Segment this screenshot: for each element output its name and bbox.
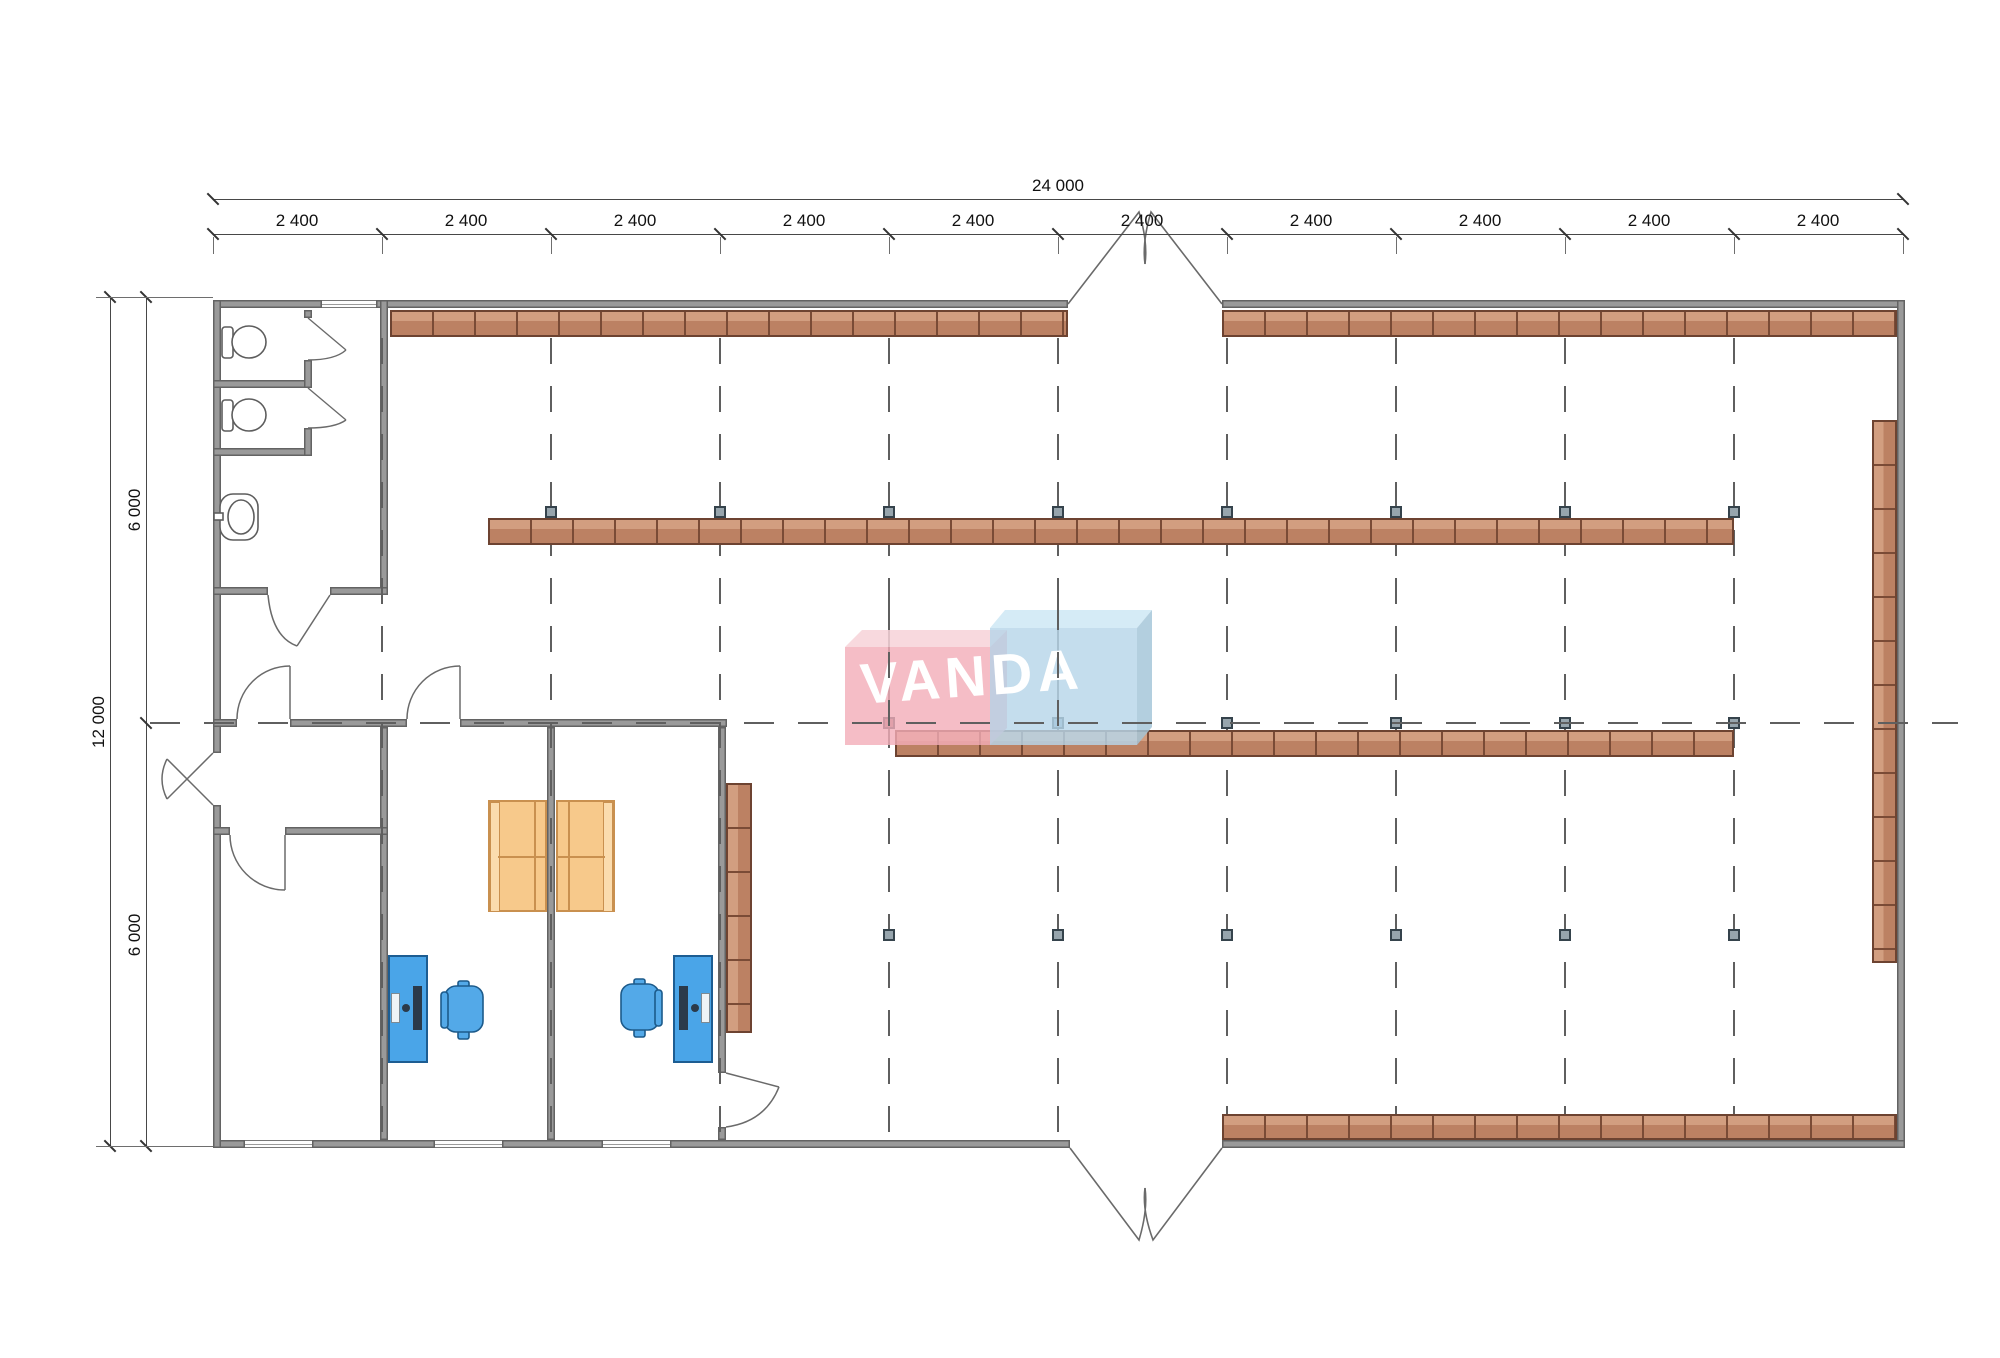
column-marker xyxy=(1052,929,1064,941)
wall-left xyxy=(213,300,221,753)
wall-top xyxy=(376,300,1068,308)
wall-bottom xyxy=(670,1140,1070,1148)
wall-bottom xyxy=(502,1140,603,1148)
office-chair xyxy=(621,979,662,1037)
dim-label-segment: 2 400 xyxy=(1797,211,1840,231)
witness-line xyxy=(1058,237,1059,254)
sofa-cushion-line xyxy=(568,802,570,910)
monitor-stand xyxy=(691,1004,699,1012)
grid-line-vertical xyxy=(381,338,383,1140)
wall-wc-stall-divider xyxy=(213,380,308,388)
dim-label-total-height: 12 000 xyxy=(89,696,109,748)
wall-wc-bottom xyxy=(213,587,268,595)
grid-line-horizontal-center xyxy=(150,722,1958,724)
entrance-door-bottom xyxy=(1070,1148,1222,1240)
wc-stall-door xyxy=(308,318,346,428)
grid-line-vertical xyxy=(719,338,721,1140)
witness-line xyxy=(213,237,214,254)
column-marker xyxy=(1728,929,1740,941)
toilet-icon xyxy=(222,326,266,358)
dimension-line-total-width xyxy=(213,199,1903,200)
grid-line-vertical-overlay xyxy=(1057,604,1059,729)
wall-wc-stall-divider xyxy=(213,448,308,456)
window-bottom xyxy=(603,1140,670,1148)
wall-wc-bottom xyxy=(330,587,388,595)
wall-right xyxy=(1897,300,1905,1148)
column-marker xyxy=(1559,506,1571,518)
dim-label-segment: 2 400 xyxy=(1121,211,1164,231)
shelf-office-back xyxy=(726,783,752,1033)
hallway-lower-door xyxy=(230,835,285,890)
witness-line xyxy=(551,237,552,254)
column-marker xyxy=(1728,506,1740,518)
keyboard xyxy=(391,993,400,1023)
column-marker xyxy=(883,929,895,941)
shelf-row-top-left xyxy=(390,310,1068,337)
office-center-doors xyxy=(237,666,460,719)
witness-line xyxy=(889,237,890,254)
witness-line xyxy=(1734,237,1735,254)
witness-line xyxy=(96,1146,213,1147)
shelf-row-top-right xyxy=(1222,310,1897,337)
window-top-wc xyxy=(322,300,376,308)
witness-line xyxy=(1903,237,1904,254)
wall-top xyxy=(213,300,322,308)
dimension-line-total-height xyxy=(110,297,111,1146)
witness-line xyxy=(96,297,213,298)
dim-label-segment: 2 400 xyxy=(1628,211,1671,231)
wall-hallway-lower xyxy=(285,827,388,835)
shelf-right-wall xyxy=(1872,420,1897,963)
wall-hallway-lower xyxy=(213,827,230,835)
wall-bottom xyxy=(1222,1140,1905,1148)
dim-label-segment: 2 400 xyxy=(1290,211,1333,231)
wall-bottom xyxy=(312,1140,435,1148)
column-marker xyxy=(545,506,557,518)
monitor xyxy=(413,986,422,1030)
shelf-row-middle-upper xyxy=(488,518,1734,545)
wall-wc-stall-front xyxy=(304,360,312,388)
witness-line xyxy=(1396,237,1397,254)
window-bottom xyxy=(435,1140,502,1148)
wall-left xyxy=(213,805,221,1148)
floor-plan-canvas: 24 000 2 400 2 400 2 400 2 400 2 400 2 4… xyxy=(0,0,2000,1358)
dim-label-height-upper: 6 000 xyxy=(125,489,145,532)
witness-line xyxy=(720,237,721,254)
dim-label-total-width: 24 000 xyxy=(1032,176,1084,196)
column-marker xyxy=(1221,929,1233,941)
dim-label-segment: 2 400 xyxy=(276,211,319,231)
witness-line xyxy=(382,237,383,254)
column-marker xyxy=(1559,929,1571,941)
wall-wc-stall-front xyxy=(304,428,312,456)
column-marker xyxy=(1390,929,1402,941)
dim-label-segment: 2 400 xyxy=(614,211,657,231)
monitor xyxy=(679,986,688,1030)
sofa-cushion-line xyxy=(558,856,605,858)
dim-label-segment: 2 400 xyxy=(445,211,488,231)
keyboard xyxy=(701,993,710,1023)
grid-line-vertical-overlay xyxy=(888,604,890,729)
dim-label-segment: 2 400 xyxy=(783,211,826,231)
wc-entry-door xyxy=(268,595,330,646)
sofa-left xyxy=(488,800,547,912)
grid-line-vertical xyxy=(550,338,552,1140)
dim-label-height-lower: 6 000 xyxy=(125,914,145,957)
shelf-row-bottom xyxy=(1222,1114,1897,1140)
toilet-icon xyxy=(222,399,266,431)
column-marker xyxy=(1390,506,1402,518)
column-marker xyxy=(714,506,726,518)
dim-label-segment: 2 400 xyxy=(952,211,995,231)
window-bottom xyxy=(245,1140,312,1148)
column-marker xyxy=(1221,506,1233,518)
monitor-stand xyxy=(402,1004,410,1012)
sofa-right xyxy=(556,800,615,912)
sofa-cushion-line xyxy=(534,802,536,910)
office-chair xyxy=(441,981,483,1039)
entrance-door-left xyxy=(162,753,213,805)
column-marker xyxy=(883,506,895,518)
wall-wc-stall-front xyxy=(304,310,312,318)
column-marker xyxy=(1052,506,1064,518)
sofa-cushion-line xyxy=(498,856,545,858)
witness-line xyxy=(1227,237,1228,254)
wall-top xyxy=(1222,300,1903,308)
dim-label-segment: 2 400 xyxy=(1459,211,1502,231)
office-shop-door xyxy=(726,1073,779,1127)
witness-line xyxy=(1565,237,1566,254)
